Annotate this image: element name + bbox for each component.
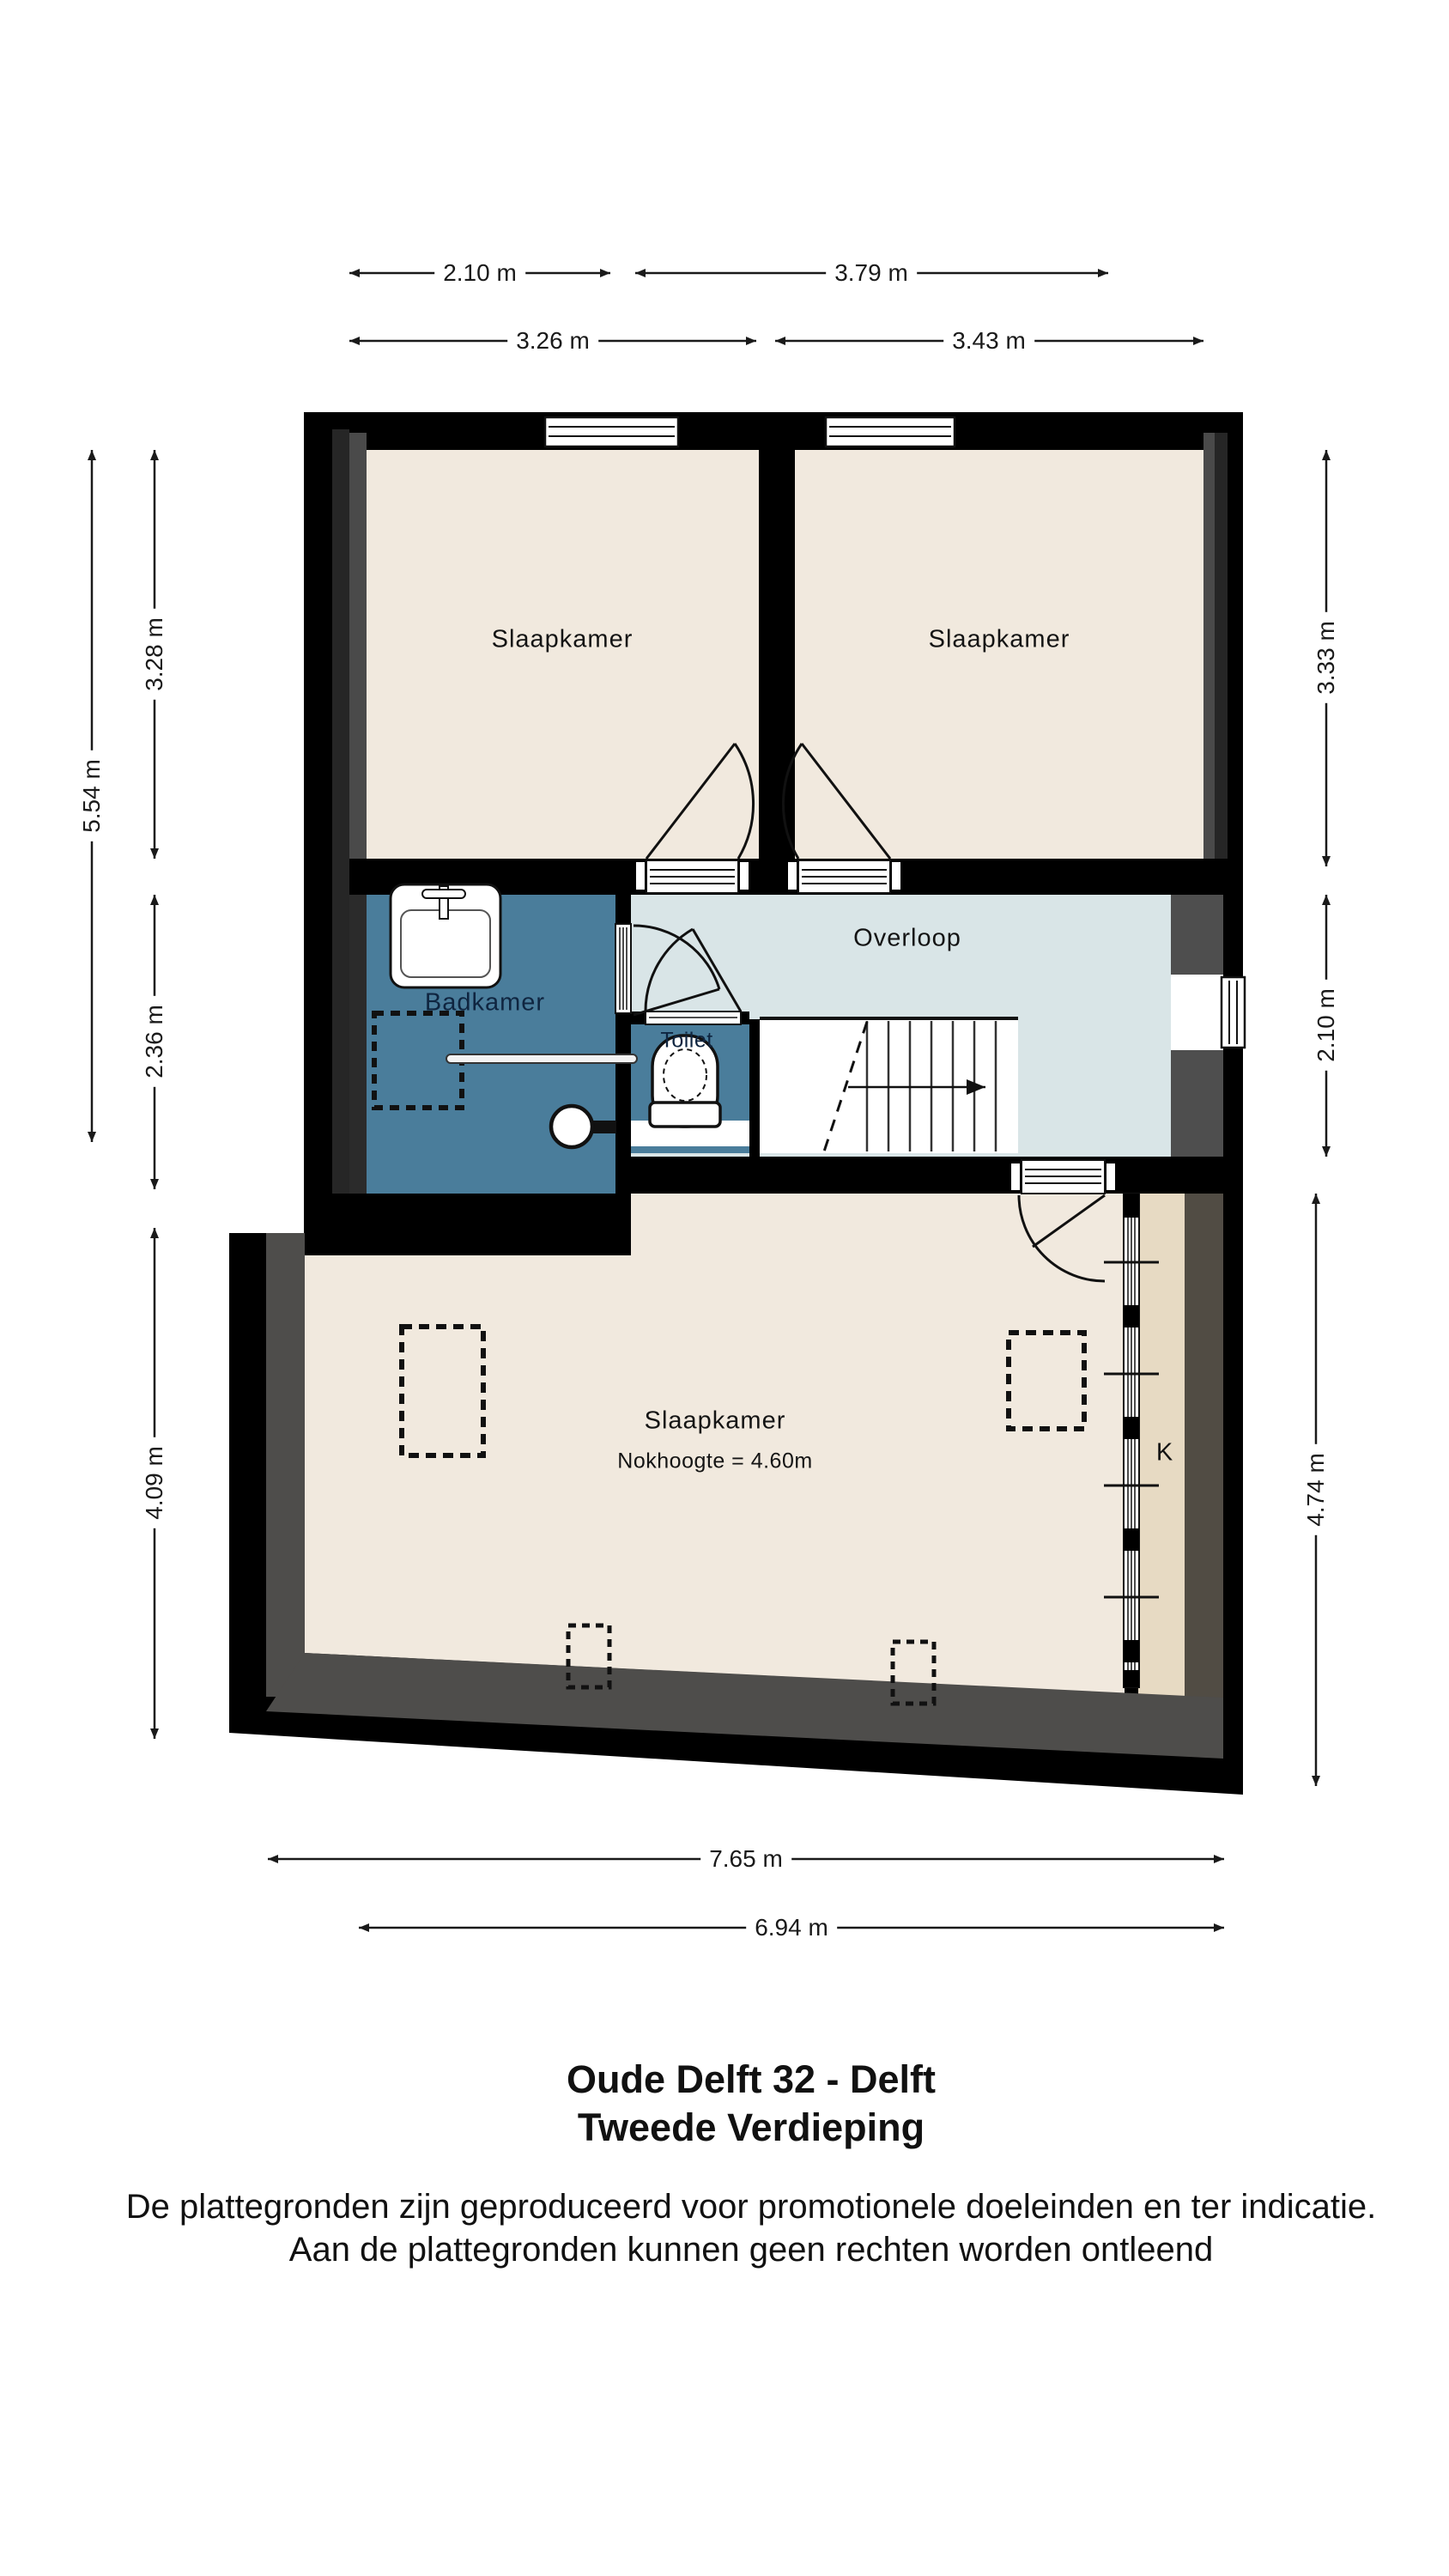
dim-label-top-left-inner: 2.10 m [434, 259, 525, 287]
disclaimer-line2: Aan de plattegronden kunnen geen rechten… [289, 2231, 1213, 2269]
shower-bar-icon [446, 1054, 637, 1063]
stairs [760, 1018, 1018, 1153]
room-label-bedroom-large: Slaapkamer [645, 1407, 786, 1436]
window-icon [545, 417, 678, 447]
dim-label-left-middle: 2.36 m [141, 996, 168, 1087]
bedroom-right-floor [795, 450, 1203, 859]
dim-label-right-middle: 2.10 m [1313, 980, 1340, 1071]
floorplan-page: 2.10 m 3.79 m 3.26 m 3.43 m 5.54 m 3.28 … [0, 0, 1449, 2576]
dim-label-bottom-inner: 6.94 m [746, 1914, 837, 1941]
room-label-ridge-height: Nokhoogte = 4.60m [617, 1449, 812, 1474]
window-icon [826, 417, 955, 447]
dim-label-left-lower: 4.09 m [141, 1437, 168, 1528]
dim-label-bottom-outer: 7.65 m [700, 1845, 791, 1873]
disclaimer-line1: De plattegronden zijn geproduceerd voor … [126, 2188, 1377, 2227]
dim-label-top-right-inner: 3.79 m [826, 259, 917, 287]
bedroom-large-floor [305, 1194, 1125, 1693]
bedroom-left-floor [367, 450, 759, 859]
sink-icon [391, 884, 500, 987]
landing-slope-blocks [1171, 895, 1223, 1157]
plan-title-line2: Tweede Verdieping [578, 2105, 925, 2150]
dim-label-right-upper: 3.33 m [1313, 612, 1340, 703]
room-label-bedroom-top-right: Slaapkamer [929, 626, 1070, 654]
side-band [1185, 1194, 1223, 1730]
dim-label-top-left-outer: 3.26 m [507, 327, 598, 355]
room-label-bedroom-top-left: Slaapkamer [492, 626, 634, 654]
room-label-toilet: Toilet [660, 1029, 712, 1054]
dim-label-left-upper: 3.28 m [141, 609, 168, 700]
room-label-landing: Overloop [853, 925, 961, 953]
room-label-closet: K [1156, 1439, 1173, 1467]
dim-label-right-lower: 4.74 m [1302, 1444, 1330, 1535]
window-icon [1222, 977, 1245, 1048]
plan-title-line1: Oude Delft 32 - Delft [567, 2057, 936, 2102]
room-label-bathroom: Badkamer [425, 989, 545, 1018]
dim-label-top-right-outer: 3.43 m [943, 327, 1034, 355]
dim-label-left-total: 5.54 m [78, 750, 106, 841]
